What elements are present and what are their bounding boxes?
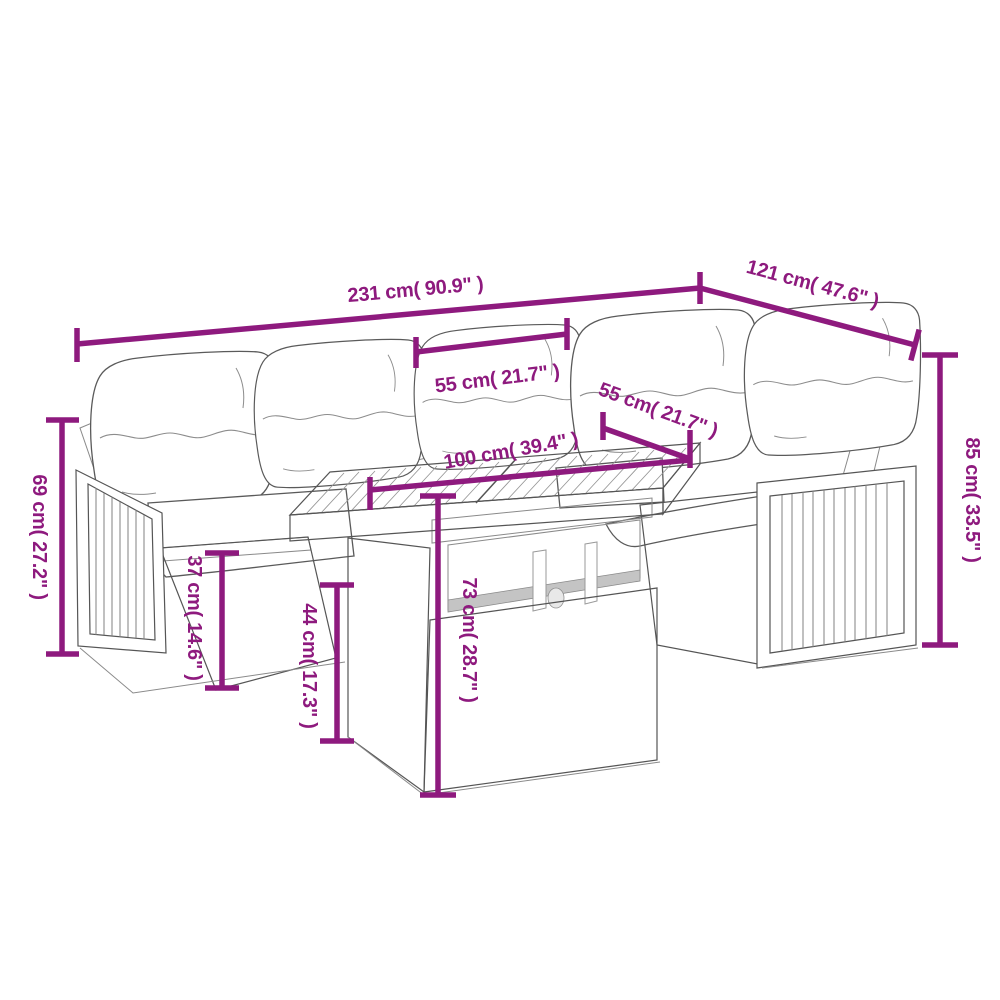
dimension-seat-height: 37 cm( 14.6" ) — [183, 553, 239, 688]
dim-label-table-base-height: 44 cm( 17.3" ) — [298, 603, 320, 728]
dim-label-table-height: 73 cm( 28.7" ) — [458, 577, 480, 702]
diagram-canvas: 231 cm( 90.9" ) 121 cm( 47.6" ) 55 cm( 2… — [0, 0, 1000, 1000]
dimension-armrest-height: 69 cm( 27.2" ) — [28, 420, 79, 654]
table-pedestal — [348, 498, 657, 792]
back-cushion — [254, 339, 425, 487]
right-armrest-panel — [757, 466, 916, 668]
back-cushion — [91, 351, 276, 512]
dim-label-seat-height: 37 cm( 14.6" ) — [183, 555, 205, 680]
dim-label-armrest-height: 69 cm( 27.2" ) — [28, 474, 50, 599]
product-dimension-diagram: 231 cm( 90.9" ) 121 cm( 47.6" ) 55 cm( 2… — [0, 0, 1000, 1000]
dim-label-back-height: 85 cm( 33.5" ) — [961, 437, 983, 562]
dimension-table-base-height: 44 cm( 17.3" ) — [298, 585, 354, 741]
dim-label-overall-width: 231 cm( 90.9" ) — [347, 273, 485, 307]
dimension-back-height: 85 cm( 33.5" ) — [922, 355, 983, 645]
